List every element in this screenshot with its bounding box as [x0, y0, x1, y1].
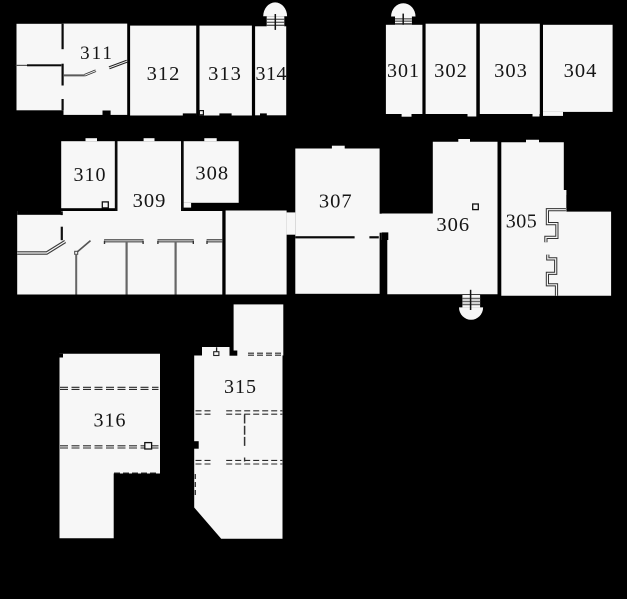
svg-text:307: 307	[319, 191, 353, 213]
svg-text:306: 306	[436, 214, 470, 236]
svg-text:301: 301	[387, 60, 420, 82]
svg-text:309: 309	[133, 190, 167, 212]
svg-text:303: 303	[494, 60, 528, 82]
svg-text:308: 308	[195, 163, 229, 185]
svg-text:313: 313	[208, 63, 242, 85]
svg-text:302: 302	[434, 60, 468, 82]
svg-text:316: 316	[94, 409, 127, 431]
svg-text:305: 305	[506, 211, 538, 233]
svg-text:310: 310	[74, 164, 107, 186]
svg-text:311: 311	[80, 43, 114, 64]
svg-text:315: 315	[224, 376, 257, 398]
svg-text:312: 312	[147, 63, 181, 85]
svg-text:304: 304	[564, 60, 598, 82]
svg-text:314: 314	[255, 63, 287, 85]
